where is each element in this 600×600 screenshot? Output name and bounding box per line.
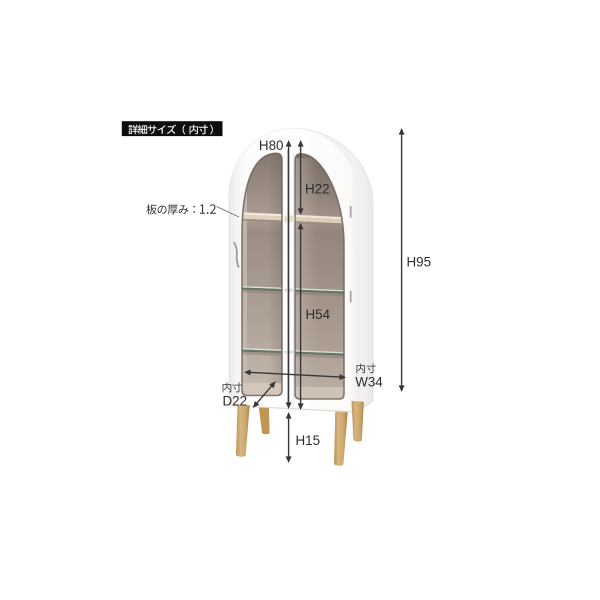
svg-text:H95: H95 [407, 254, 432, 269]
svg-text:H54: H54 [306, 307, 331, 322]
svg-text:H80: H80 [259, 138, 284, 153]
svg-text:W34: W34 [355, 374, 383, 389]
svg-text:D22: D22 [223, 394, 248, 409]
svg-text:H15: H15 [296, 433, 321, 448]
svg-text:H22: H22 [305, 181, 330, 196]
